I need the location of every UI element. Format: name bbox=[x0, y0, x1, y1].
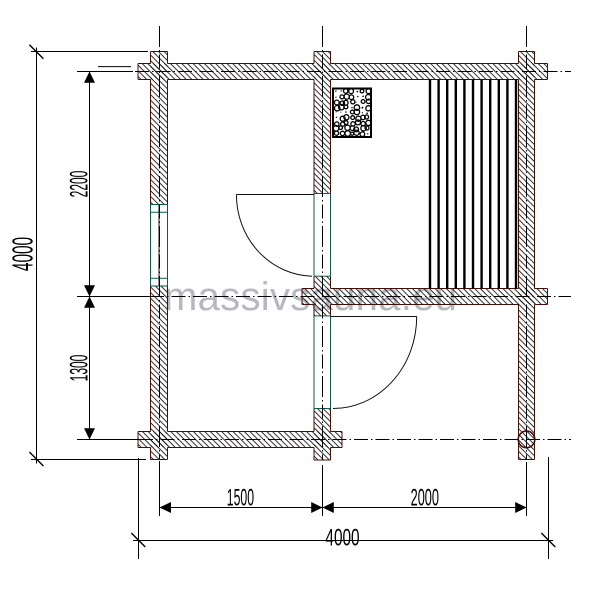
svg-text:4000: 4000 bbox=[6, 237, 38, 271]
svg-text:2000: 2000 bbox=[411, 486, 439, 512]
svg-text:1300: 1300 bbox=[66, 355, 94, 382]
svg-text:1500: 1500 bbox=[227, 485, 254, 511]
svg-text:4000: 4000 bbox=[325, 525, 359, 551]
svg-text:2200: 2200 bbox=[66, 171, 94, 198]
